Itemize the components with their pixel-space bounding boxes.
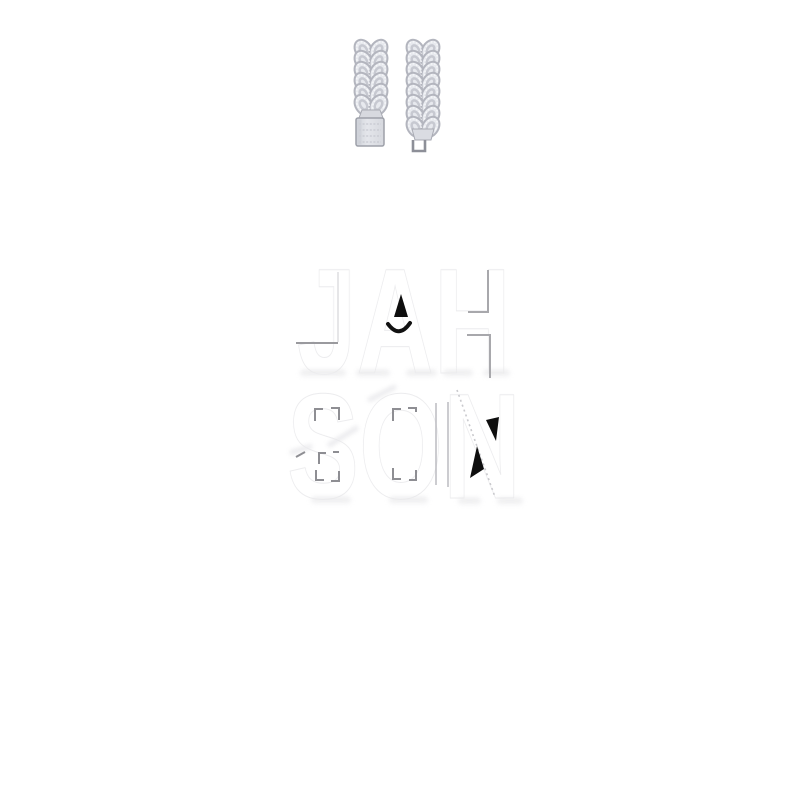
n-diagonal-dotted <box>457 390 495 497</box>
n-wedge-down <box>486 417 499 441</box>
n-wedge-up <box>470 446 484 478</box>
watermark-accents <box>0 0 800 800</box>
product-image: JAH SON <box>0 0 800 800</box>
s-corner-fragments <box>296 408 339 481</box>
h-fragment <box>467 270 490 378</box>
n-stem-fragments <box>436 402 448 487</box>
a-counter-arc <box>388 323 410 331</box>
a-counter-triangle <box>394 294 408 317</box>
o-corner-fragments <box>393 408 416 480</box>
